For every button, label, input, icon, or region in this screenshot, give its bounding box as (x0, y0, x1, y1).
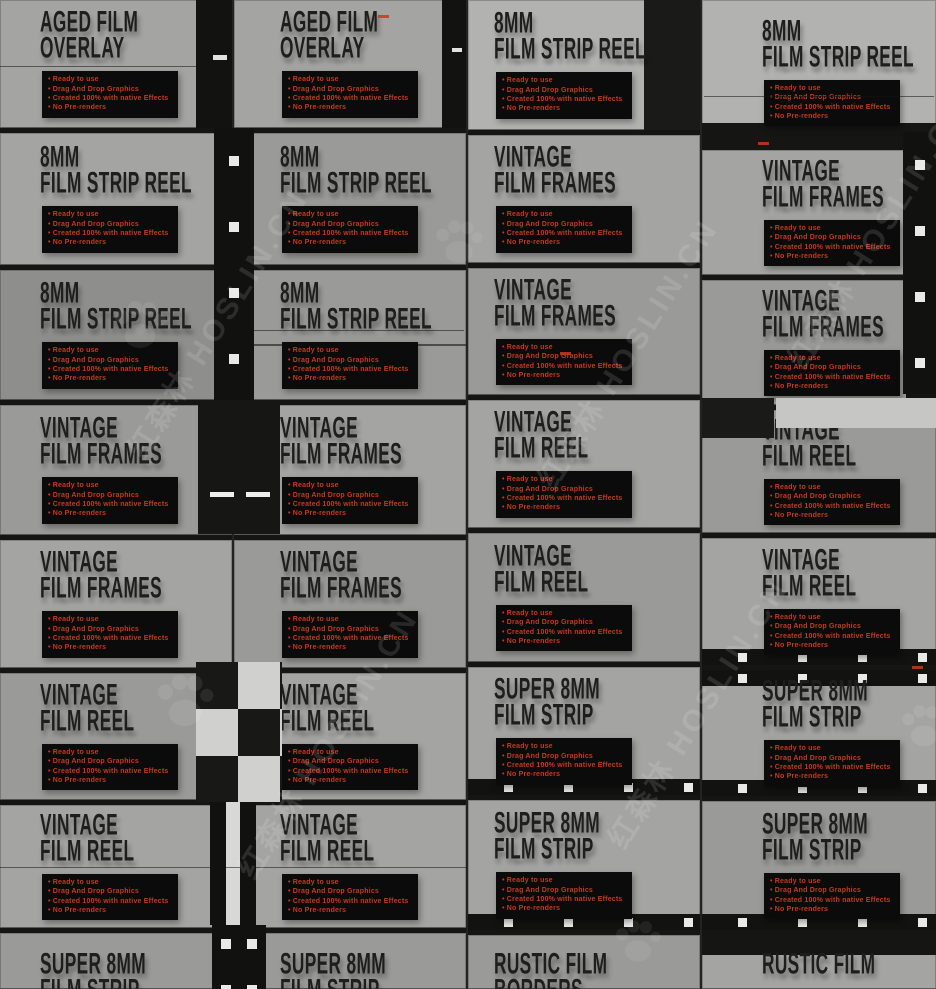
feature-list: Ready to useDrag And Drop GraphicsCreate… (42, 744, 178, 791)
tile-content: VINTAGE FILM FRAMES Ready to useDrag And… (702, 150, 936, 275)
feature-item: Drag And Drop Graphics (288, 356, 409, 365)
feature-item: Ready to use (770, 613, 891, 622)
frame-hairline (236, 330, 464, 331)
feature-item: Created 100% with native Effects (770, 502, 891, 511)
feature-item: Created 100% with native Effects (48, 897, 169, 906)
feature-item: Drag And Drop Graphics (502, 752, 623, 761)
film-strip-vertical (212, 925, 266, 989)
tile-title: SUPER 8MM FILM STRIP (40, 952, 232, 989)
feature-item: No Pre-renders (770, 511, 891, 520)
tile-title-line2: BORDERS (494, 975, 642, 989)
tile-title: VINTAGE FILM FRAMES (280, 550, 466, 602)
feature-item: Drag And Drop Graphics (48, 220, 169, 229)
feature-list: Ready to useDrag And Drop GraphicsCreate… (496, 339, 632, 386)
feature-item: Ready to use (288, 481, 409, 490)
template-preview-tile[interactable]: VINTAGE FILM FRAMES Ready to useDrag And… (468, 130, 700, 263)
template-preview-tile[interactable]: VINTAGE FILM REEL Ready to useDrag And D… (702, 533, 936, 665)
feature-item: No Pre-renders (502, 238, 623, 247)
tile-title: VINTAGE FILM FRAMES (40, 550, 232, 602)
feature-item: No Pre-renders (770, 772, 891, 781)
template-preview-tile[interactable]: VINTAGE FILM FRAMES Ready to useDrag And… (0, 535, 232, 668)
feature-list: Ready to useDrag And Drop GraphicsCreate… (764, 80, 900, 127)
feature-item: Ready to use (502, 742, 623, 751)
tile-title-line2: FILM STRIP REEL (40, 304, 178, 336)
feature-item: No Pre-renders (48, 776, 169, 785)
feature-item: Created 100% with native Effects (502, 628, 623, 637)
feature-item: Ready to use (502, 76, 623, 85)
tile-title-line2: OVERLAY (40, 33, 178, 65)
feature-item: Ready to use (770, 483, 891, 492)
template-preview-tile[interactable]: VINTAGE FILM FRAMES Ready to useDrag And… (702, 145, 936, 275)
feature-item: Created 100% with native Effects (770, 763, 891, 772)
feature-list: Ready to useDrag And Drop GraphicsCreate… (496, 738, 632, 785)
tile-content: AGED FILM OVERLAY Ready to useDrag And D… (234, 0, 466, 128)
feature-item: No Pre-renders (502, 503, 623, 512)
tile-title-line2: FILM FRAMES (40, 439, 178, 471)
feature-list: Ready to useDrag And Drop GraphicsCreate… (764, 479, 900, 526)
feature-item: Ready to use (288, 615, 409, 624)
tile-content: 8MM FILM STRIP REEL Ready to useDrag And… (234, 133, 466, 265)
tile-title: 8MM FILM STRIP REEL (762, 19, 936, 71)
template-preview-tile[interactable]: SUPER 8MM FILM STRIP Ready to useDrag An… (468, 662, 700, 795)
tile-title: VINTAGE FILM REEL (494, 410, 700, 462)
template-preview-tile[interactable]: SUPER 8MM FILM STRIP Ready to useDrag An… (702, 796, 936, 930)
tile-content: SUPER 8MM FILM STRIP Ready to useDrag An… (468, 800, 700, 930)
feature-item: Drag And Drop Graphics (48, 887, 169, 896)
feature-item: Drag And Drop Graphics (502, 220, 623, 229)
film-frame-block (776, 398, 936, 428)
feature-item: Ready to use (502, 210, 623, 219)
feature-item: Created 100% with native Effects (48, 634, 169, 643)
tile-title: AGED FILM OVERLAY (40, 10, 232, 62)
feature-item: No Pre-renders (48, 509, 169, 518)
tile-title: SUPER 8MM FILM STRIP (494, 677, 700, 729)
feature-list: Ready to useDrag And Drop GraphicsCreate… (282, 611, 418, 658)
feature-item: No Pre-renders (502, 770, 623, 779)
feature-item: Drag And Drop Graphics (502, 618, 623, 627)
feature-item: No Pre-renders (48, 238, 169, 247)
feature-list: Ready to useDrag And Drop GraphicsCreate… (496, 471, 632, 518)
gallery-column-4: 8MM FILM STRIP REEL Ready to useDrag And… (702, 0, 936, 989)
tile-title: VINTAGE FILM FRAMES (494, 278, 700, 330)
template-preview-tile[interactable]: 8MM FILM STRIP REEL Ready to useDrag And… (0, 265, 232, 400)
tile-title: VINTAGE FILM REEL (280, 813, 466, 865)
feature-item: Ready to use (770, 224, 891, 233)
tile-title: RUSTIC FILM BORDERS (494, 952, 700, 989)
tile-title-line2: FILM STRIP (40, 975, 178, 989)
feature-item: Created 100% with native Effects (48, 767, 169, 776)
template-preview-tile[interactable]: 8MM FILM STRIP REEL Ready to useDrag And… (702, 0, 936, 145)
feature-item: Drag And Drop Graphics (770, 363, 891, 372)
feature-item: Drag And Drop Graphics (288, 757, 409, 766)
feature-item: No Pre-renders (288, 776, 409, 785)
tile-title-line2: FILM REEL (494, 567, 642, 599)
feature-item: Ready to use (770, 744, 891, 753)
feature-item: Drag And Drop Graphics (288, 491, 409, 500)
tile-content: RUSTIC FILM Ready to useDrag And Drop Gr… (702, 935, 936, 989)
feature-item: Ready to use (770, 354, 891, 363)
frame-hairline (0, 66, 232, 67)
film-strip-vertical (198, 400, 280, 534)
template-preview-tile[interactable]: AGED FILM OVERLAY Ready to useDrag And D… (0, 0, 232, 128)
film-strip-vertical (210, 802, 266, 925)
frame-hairline (0, 867, 466, 868)
tile-content: VINTAGE FILM FRAMES Ready to useDrag And… (0, 540, 232, 668)
feature-item: Drag And Drop Graphics (770, 622, 891, 631)
feature-item: No Pre-renders (288, 103, 409, 112)
tile-title-line2: FILM FRAMES (40, 573, 178, 605)
feature-item: No Pre-renders (770, 252, 891, 261)
red-marking (560, 352, 571, 355)
tile-content: RUSTIC FILM BORDERS Ready to useDrag And… (468, 935, 700, 989)
template-preview-tile[interactable]: VINTAGE FILM REEL Ready to useDrag And D… (468, 528, 700, 662)
feature-item: Created 100% with native Effects (770, 632, 891, 641)
template-preview-tile[interactable]: VINTAGE FILM FRAMES Ready to useDrag And… (234, 535, 466, 668)
feature-item: Ready to use (48, 481, 169, 490)
feature-item: No Pre-renders (288, 906, 409, 915)
template-preview-tile[interactable]: RUSTIC FILM Ready to useDrag And Drop Gr… (702, 930, 936, 989)
tile-content: 8MM FILM STRIP REEL Ready to useDrag And… (468, 0, 700, 130)
feature-item: Ready to use (48, 75, 169, 84)
tile-title-line2: FILM FRAMES (762, 182, 887, 214)
feature-item: Ready to use (770, 877, 891, 886)
tile-title: SUPER 8MM FILM STRIP (280, 952, 466, 989)
tile-content: VINTAGE FILM REEL Ready to useDrag And D… (468, 533, 700, 662)
feature-list: Ready to useDrag And Drop GraphicsCreate… (496, 206, 632, 253)
tile-title: VINTAGE FILM FRAMES (280, 416, 466, 468)
tile-content: 8MM FILM STRIP REEL Ready to useDrag And… (702, 0, 936, 145)
feature-list: Ready to useDrag And Drop GraphicsCreate… (42, 71, 178, 118)
tile-content: 8MM FILM STRIP REEL Ready to useDrag And… (0, 270, 232, 400)
feature-item: Ready to use (48, 615, 169, 624)
feature-item: No Pre-renders (288, 509, 409, 518)
tile-title: 8MM FILM STRIP REEL (40, 281, 232, 333)
feature-item: Drag And Drop Graphics (48, 491, 169, 500)
tile-title-line2: FILM REEL (494, 433, 642, 465)
feature-item: Ready to use (288, 75, 409, 84)
feature-item: Ready to use (502, 609, 623, 618)
tile-title: 8MM FILM STRIP REEL (40, 145, 232, 197)
red-marking (758, 142, 769, 145)
tile-title-line2: FILM STRIP (494, 834, 642, 866)
tile-content: 8MM FILM STRIP REEL Ready to useDrag And… (0, 133, 232, 265)
template-preview-tile[interactable]: VINTAGE FILM FRAMES Ready to useDrag And… (468, 263, 700, 395)
tile-title: SUPER 8MM FILM STRIP (494, 811, 700, 863)
feature-list: Ready to useDrag And Drop GraphicsCreate… (282, 744, 418, 791)
feature-list: Ready to useDrag And Drop GraphicsCreate… (282, 342, 418, 389)
tile-title: 8MM FILM STRIP REEL (494, 11, 700, 63)
tile-title: SUPER 8MM FILM STRIP (762, 812, 936, 864)
feature-item: Drag And Drop Graphics (48, 757, 169, 766)
feature-item: No Pre-renders (48, 103, 169, 112)
template-preview-tile[interactable]: AGED FILM OVERLAY Ready to useDrag And D… (234, 0, 466, 128)
feature-list: Ready to useDrag And Drop GraphicsCreate… (42, 206, 178, 253)
template-preview-tile[interactable]: SUPER 8MM FILM STRIP Ready to useDrag An… (0, 928, 232, 989)
feature-list: Ready to useDrag And Drop GraphicsCreate… (496, 605, 632, 652)
template-preview-tile[interactable]: VINTAGE FILM FRAMES Ready to useDrag And… (702, 275, 936, 405)
feature-item: Created 100% with native Effects (48, 229, 169, 238)
feature-item: Drag And Drop Graphics (770, 93, 891, 102)
feature-item: Ready to use (502, 475, 623, 484)
feature-item: Ready to use (288, 210, 409, 219)
feature-list: Ready to useDrag And Drop GraphicsCreate… (764, 873, 900, 920)
tile-content: VINTAGE FILM REEL Ready to useDrag And D… (468, 400, 700, 528)
feature-list: Ready to useDrag And Drop GraphicsCreate… (764, 609, 900, 656)
feature-item: Created 100% with native Effects (288, 500, 409, 509)
feature-item: Drag And Drop Graphics (288, 625, 409, 634)
film-strip-vertical (214, 128, 254, 400)
feature-item: No Pre-renders (48, 906, 169, 915)
feature-item: Created 100% with native Effects (502, 494, 623, 503)
tile-title-line2: FILM FRAMES (494, 301, 642, 333)
template-preview-tile[interactable]: 8MM FILM STRIP REEL Ready to useDrag And… (468, 0, 700, 130)
tile-title: RUSTIC FILM (762, 952, 936, 989)
feature-item: Created 100% with native Effects (502, 95, 623, 104)
template-gallery-canvas: AGED FILM OVERLAY Ready to useDrag And D… (0, 0, 936, 989)
feature-list: Ready to useDrag And Drop GraphicsCreate… (764, 740, 900, 787)
tile-title-line2: FILM FRAMES (280, 573, 414, 605)
tile-content: VINTAGE FILM FRAMES Ready to useDrag And… (468, 268, 700, 395)
tile-title-line2: OVERLAY (280, 33, 414, 65)
tile-title-line2: FILM STRIP REEL (762, 42, 887, 74)
tile-title: VINTAGE FILM FRAMES (494, 145, 700, 197)
red-marking (912, 666, 923, 669)
tile-title-line2: FILM REEL (280, 706, 414, 738)
template-preview-tile[interactable]: VINTAGE FILM REEL Ready to useDrag And D… (0, 800, 232, 928)
tile-title: AGED FILM OVERLAY (280, 10, 466, 62)
feature-item: Ready to use (48, 748, 169, 757)
tile-title-line2: FILM STRIP REEL (494, 34, 642, 66)
template-preview-tile[interactable]: 8MM FILM STRIP REEL Ready to useDrag And… (234, 265, 466, 400)
template-preview-tile[interactable]: SUPER 8MM FILM STRIP Ready to useDrag An… (702, 665, 936, 796)
feature-item: Ready to use (288, 878, 409, 887)
tile-title-line2: FILM REEL (280, 836, 414, 868)
tile-title: VINTAGE FILM REEL (494, 544, 700, 596)
feature-item: No Pre-renders (502, 371, 623, 380)
tile-title-line2: FILM FRAMES (280, 439, 414, 471)
template-preview-tile[interactable]: SUPER 8MM FILM STRIP Ready to useDrag An… (234, 928, 466, 989)
feature-list: Ready to useDrag And Drop GraphicsCreate… (42, 477, 178, 524)
tile-title-line2: FILM REEL (40, 836, 178, 868)
feature-item: Ready to use (770, 84, 891, 93)
tile-title-line2: FILM FRAMES (494, 168, 642, 200)
feature-item: Created 100% with native Effects (288, 767, 409, 776)
tile-title-line2: FILM STRIP (280, 975, 414, 989)
feature-item: Drag And Drop Graphics (288, 85, 409, 94)
feature-item: No Pre-renders (502, 904, 623, 913)
tile-title-line2: FILM STRIP (762, 835, 887, 867)
feature-item: Ready to use (502, 343, 623, 352)
tile-content: VINTAGE FILM FRAMES Ready to useDrag And… (234, 540, 466, 668)
tile-content: SUPER 8MM FILM STRIP Ready to useDrag An… (234, 933, 466, 989)
feature-item: No Pre-renders (48, 643, 169, 652)
tile-title-line2: FILM STRIP (494, 700, 642, 732)
feature-item: Drag And Drop Graphics (770, 754, 891, 763)
film-strip-vertical (903, 132, 936, 394)
feature-list: Ready to useDrag And Drop GraphicsCreate… (42, 611, 178, 658)
tile-title-line2: FILM STRIP REEL (280, 168, 414, 200)
red-marking (378, 15, 389, 18)
film-frame-block (702, 398, 774, 438)
tile-title: SUPER 8MM FILM STRIP (762, 679, 936, 731)
feature-item: Created 100% with native Effects (502, 761, 623, 770)
feature-item: Ready to use (48, 346, 169, 355)
tile-content: VINTAGE FILM FRAMES Ready to useDrag And… (468, 135, 700, 263)
tile-title-line2: FILM REEL (762, 571, 887, 603)
tile-content: 8MM FILM STRIP REEL Ready to useDrag And… (234, 270, 466, 400)
feature-item: No Pre-renders (502, 104, 623, 113)
feature-item: No Pre-renders (770, 905, 891, 914)
feature-item: Drag And Drop Graphics (48, 85, 169, 94)
feature-item: Drag And Drop Graphics (502, 485, 623, 494)
feature-list: Ready to useDrag And Drop GraphicsCreate… (282, 477, 418, 524)
feature-item: Drag And Drop Graphics (288, 220, 409, 229)
feature-list: Ready to useDrag And Drop GraphicsCreate… (764, 220, 900, 267)
tile-title-line2 (762, 975, 887, 989)
tile-title: VINTAGE FILM REEL (762, 548, 936, 600)
tile-title: 8MM FILM STRIP REEL (280, 281, 466, 333)
feature-item: Drag And Drop Graphics (770, 492, 891, 501)
feature-item: Created 100% with native Effects (48, 94, 169, 103)
feature-item: Drag And Drop Graphics (770, 233, 891, 242)
feature-list: Ready to useDrag And Drop GraphicsCreate… (496, 872, 632, 919)
feature-item: Created 100% with native Effects (288, 94, 409, 103)
gallery-column-3: 8MM FILM STRIP REEL Ready to useDrag And… (468, 0, 700, 989)
feature-item: Created 100% with native Effects (288, 365, 409, 374)
tile-title: VINTAGE FILM REEL (40, 813, 232, 865)
feature-item: Ready to use (502, 876, 623, 885)
tile-content: SUPER 8MM FILM STRIP Ready to useDrag An… (702, 801, 936, 930)
feature-item: Created 100% with native Effects (48, 365, 169, 374)
feature-item: Created 100% with native Effects (288, 897, 409, 906)
tile-content: SUPER 8MM FILM STRIP Ready to useDrag An… (0, 933, 232, 989)
frame-hairline (704, 96, 934, 97)
feature-item: Created 100% with native Effects (502, 229, 623, 238)
tile-title-line2: FILM STRIP (762, 702, 887, 734)
tile-title: VINTAGE FILM REEL (280, 683, 466, 735)
tile-title-line2: FILM REEL (40, 706, 178, 738)
feature-item: Ready to use (288, 748, 409, 757)
feature-list: Ready to useDrag And Drop GraphicsCreate… (282, 874, 418, 921)
feature-list: Ready to useDrag And Drop GraphicsCreate… (42, 342, 178, 389)
feature-item: Drag And Drop Graphics (48, 625, 169, 634)
tile-title-line2: FILM STRIP REEL (40, 168, 178, 200)
template-preview-tile[interactable]: SUPER 8MM FILM STRIP Ready to useDrag An… (468, 795, 700, 930)
tile-content: SUPER 8MM FILM STRIP Ready to useDrag An… (702, 670, 936, 796)
feature-list: Ready to useDrag And Drop GraphicsCreate… (282, 206, 418, 253)
feature-item: No Pre-renders (770, 112, 891, 121)
feature-item: No Pre-renders (288, 238, 409, 247)
feature-item: Created 100% with native Effects (770, 243, 891, 252)
tile-title: 8MM FILM STRIP REEL (280, 145, 466, 197)
feature-item: Ready to use (48, 210, 169, 219)
feature-item: No Pre-renders (770, 641, 891, 650)
feature-item: Drag And Drop Graphics (502, 886, 623, 895)
film-leader-frames (196, 662, 282, 802)
feature-item: No Pre-renders (288, 643, 409, 652)
feature-item: Ready to use (48, 878, 169, 887)
feature-item: Drag And Drop Graphics (288, 887, 409, 896)
feature-item: Created 100% with native Effects (48, 500, 169, 509)
feature-item: Created 100% with native Effects (502, 362, 623, 371)
feature-list: Ready to useDrag And Drop GraphicsCreate… (42, 874, 178, 921)
feature-item: Drag And Drop Graphics (48, 356, 169, 365)
feature-item: Created 100% with native Effects (288, 634, 409, 643)
feature-item: Created 100% with native Effects (502, 895, 623, 904)
feature-item: No Pre-renders (288, 374, 409, 383)
feature-item: No Pre-renders (502, 637, 623, 646)
feature-item: Created 100% with native Effects (770, 103, 891, 112)
template-preview-tile[interactable]: VINTAGE FILM REEL Ready to useDrag And D… (234, 800, 466, 928)
tile-content: SUPER 8MM FILM STRIP Ready to useDrag An… (468, 667, 700, 795)
template-preview-tile[interactable]: 8MM FILM STRIP REEL Ready to useDrag And… (234, 128, 466, 265)
feature-item: No Pre-renders (48, 374, 169, 383)
tile-title-line2: FILM FRAMES (762, 312, 887, 344)
tile-content: AGED FILM OVERLAY Ready to useDrag And D… (0, 0, 232, 128)
feature-item: Created 100% with native Effects (288, 229, 409, 238)
feature-item: Ready to use (288, 346, 409, 355)
feature-list: Ready to useDrag And Drop GraphicsCreate… (282, 71, 418, 118)
feature-item: Drag And Drop Graphics (502, 86, 623, 95)
feature-list: Ready to useDrag And Drop GraphicsCreate… (764, 350, 900, 397)
feature-item: Drag And Drop Graphics (770, 886, 891, 895)
template-preview-tile[interactable]: VINTAGE FILM REEL Ready to useDrag And D… (468, 395, 700, 528)
tile-content: VINTAGE FILM REEL Ready to useDrag And D… (702, 538, 936, 665)
feature-list: Ready to useDrag And Drop GraphicsCreate… (496, 72, 632, 119)
template-preview-tile[interactable]: 8MM FILM STRIP REEL Ready to useDrag And… (0, 128, 232, 265)
feature-item: Created 100% with native Effects (770, 896, 891, 905)
feature-item: No Pre-renders (770, 382, 891, 391)
tile-title-line2: FILM STRIP REEL (280, 304, 414, 336)
tile-content: VINTAGE FILM FRAMES Ready to useDrag And… (702, 280, 936, 405)
tile-title-line2: FILM REEL (762, 441, 887, 473)
template-preview-tile[interactable]: RUSTIC FILM BORDERS Ready to useDrag And… (468, 930, 700, 989)
feature-item: Created 100% with native Effects (770, 373, 891, 382)
